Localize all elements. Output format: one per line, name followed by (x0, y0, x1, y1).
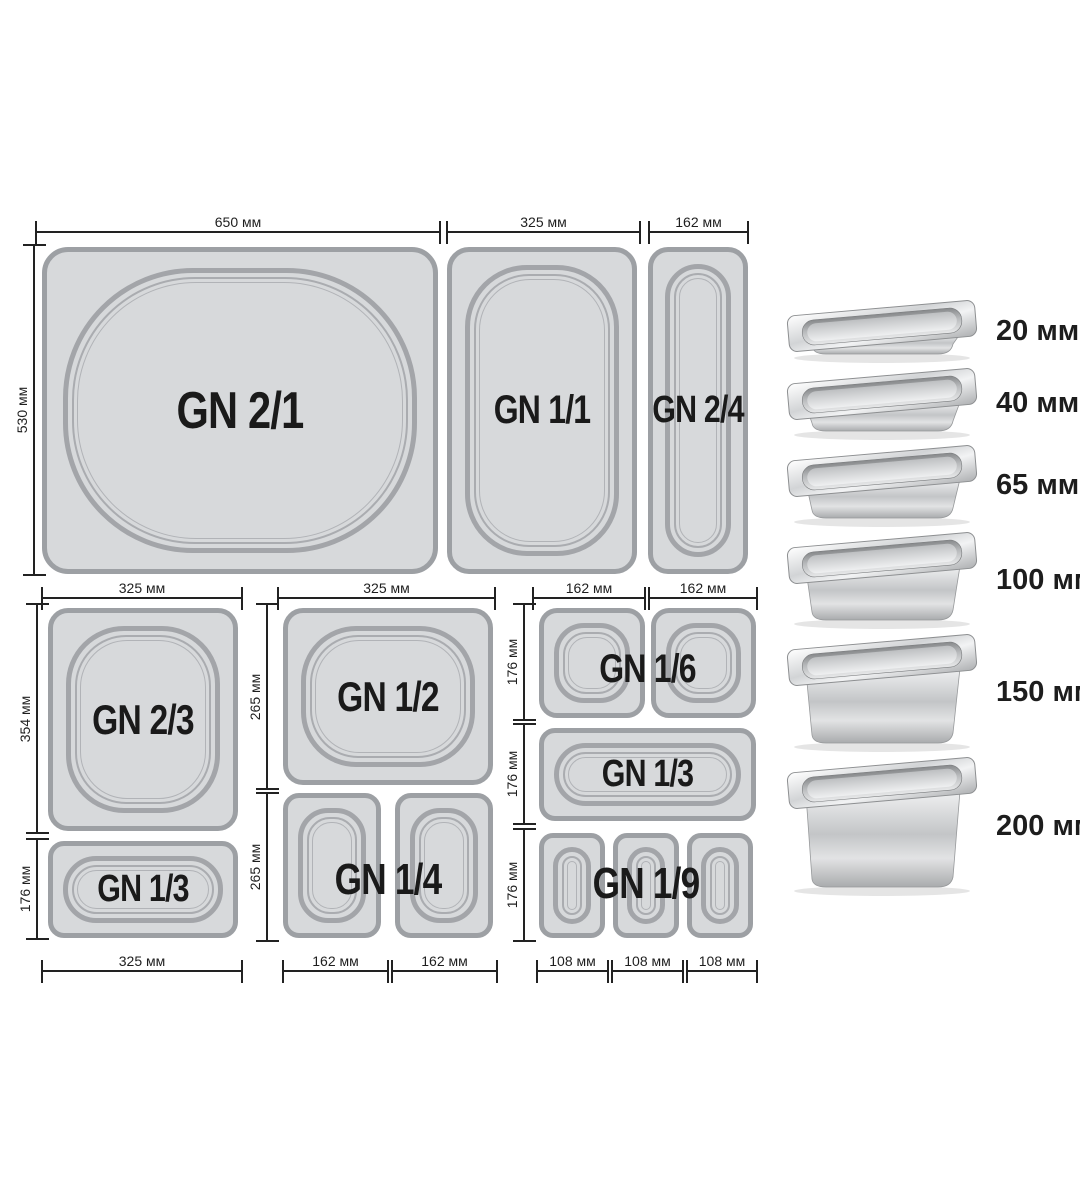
dim-top-325-gn12: 325 мм (278, 597, 495, 599)
dim-label-162: 162 мм (649, 214, 748, 230)
dim-bottom-162-gn14b: 162 мм (392, 970, 497, 972)
dim-label-162: 162 мм (533, 580, 645, 596)
depth-label: 100 мм (996, 564, 1080, 597)
pan-gn-2-3: GN 2/3 (48, 608, 238, 831)
dim-label-176: 176 мм (17, 866, 33, 913)
dim-label-108: 108 мм (612, 953, 683, 969)
steel-pan-photo (782, 298, 982, 364)
depth-label: 40 мм (996, 387, 1079, 420)
dim-label-325: 325 мм (447, 214, 640, 230)
dim-top-325-gn11: 325 мм (447, 231, 640, 233)
dim-label-325: 325 мм (42, 953, 242, 969)
dim-left-176-gn13r: 176 мм (523, 724, 525, 824)
depth-row: 100 мм (782, 530, 1080, 630)
dim-left-176-gn16: 176 мм (523, 604, 525, 720)
dim-left-265-gn12: 265 мм (266, 604, 268, 789)
dim-bottom-162-gn14a: 162 мм (283, 970, 388, 972)
steel-pan-photo (782, 366, 982, 441)
pan-gn-1-1-label: GN 1/1 (466, 247, 618, 574)
depth-label: 65 мм (996, 469, 1079, 502)
dim-label-108: 108 мм (687, 953, 757, 969)
dim-label-650: 650 мм (36, 214, 440, 230)
dim-bottom-108-a: 108 мм (537, 970, 608, 972)
pan-gn-1-9-label: GN 1/9 (560, 858, 731, 910)
dim-label-108: 108 мм (537, 953, 608, 969)
pan-gn-1-6-label: GN 1/6 (561, 645, 735, 693)
steel-pan-photo (782, 443, 982, 528)
steel-pan-photo (782, 755, 982, 897)
dim-bottom-108-c: 108 мм (687, 970, 757, 972)
dim-label-325: 325 мм (278, 580, 495, 596)
depth-label: 150 мм (996, 676, 1080, 709)
dim-label-265: 265 мм (247, 673, 263, 720)
pan-gn-1-3-left: GN 1/3 (48, 841, 238, 938)
dim-bottom-325-gn13: 325 мм (42, 970, 242, 972)
steel-pan-photo (782, 530, 982, 630)
dim-label-530: 530 мм (14, 387, 30, 434)
depth-label: 20 мм (996, 315, 1079, 348)
pan-gn-2-1-label: GN 2/1 (82, 247, 399, 574)
dim-label-176: 176 мм (504, 751, 520, 798)
dim-top-162-gn16a: 162 мм (533, 597, 645, 599)
pan-gn-2-4-label: GN 2/4 (658, 247, 738, 574)
pan-gn-1-4-label: GN 1/4 (304, 852, 472, 908)
depth-row: 20 мм (782, 298, 1080, 364)
gn-sizes-infographic: 650 мм 325 мм 162 мм 530 мм GN 2/1 GN 1/… (0, 0, 1080, 1200)
dim-label-325: 325 мм (42, 580, 242, 596)
dim-label-162: 162 мм (649, 580, 757, 596)
dim-label-354: 354 мм (17, 695, 33, 742)
dim-top-325-gn23: 325 мм (42, 597, 242, 599)
dim-label-162: 162 мм (392, 953, 497, 969)
dim-bottom-108-b: 108 мм (612, 970, 683, 972)
pan-gn-2-1: GN 2/1 (42, 247, 438, 574)
dim-label-162: 162 мм (283, 953, 388, 969)
pan-gn-1-2-label: GN 1/2 (304, 608, 472, 785)
dim-top-650: 650 мм (36, 231, 440, 233)
pan-gn-2-4: GN 2/4 (648, 247, 748, 574)
depth-list: 20 мм 40 мм 65 мм 10 (782, 298, 1080, 897)
dim-top-162-gn16b: 162 мм (649, 597, 757, 599)
dim-left-176-gn13: 176 мм (36, 839, 38, 939)
depth-row: 150 мм (782, 632, 1080, 753)
pan-gn-2-3-label: GN 2/3 (67, 608, 219, 831)
pan-gn-1-3-right-label: GN 1/3 (561, 728, 735, 821)
pan-gn-1-2: GN 1/2 (283, 608, 493, 785)
depth-row: 40 мм (782, 366, 1080, 441)
dim-top-162-gn24: 162 мм (649, 231, 748, 233)
pan-gn-1-3-left-label: GN 1/3 (67, 841, 219, 938)
dim-label-176: 176 мм (504, 639, 520, 686)
pan-gn-1-3-right: GN 1/3 (539, 728, 756, 821)
depth-row: 200 мм (782, 755, 1080, 897)
dim-left-530: 530 мм (33, 245, 35, 575)
pan-gn-1-1: GN 1/1 (447, 247, 637, 574)
steel-pan-photo (782, 632, 982, 753)
depth-row: 65 мм (782, 443, 1080, 528)
depth-label: 200 мм (996, 810, 1080, 843)
dim-left-176-gn19: 176 мм (523, 829, 525, 941)
dim-label-176: 176 мм (504, 862, 520, 909)
dim-label-265: 265 мм (247, 844, 263, 891)
dim-left-354: 354 мм (36, 604, 38, 833)
dim-left-265-gn14: 265 мм (266, 793, 268, 941)
